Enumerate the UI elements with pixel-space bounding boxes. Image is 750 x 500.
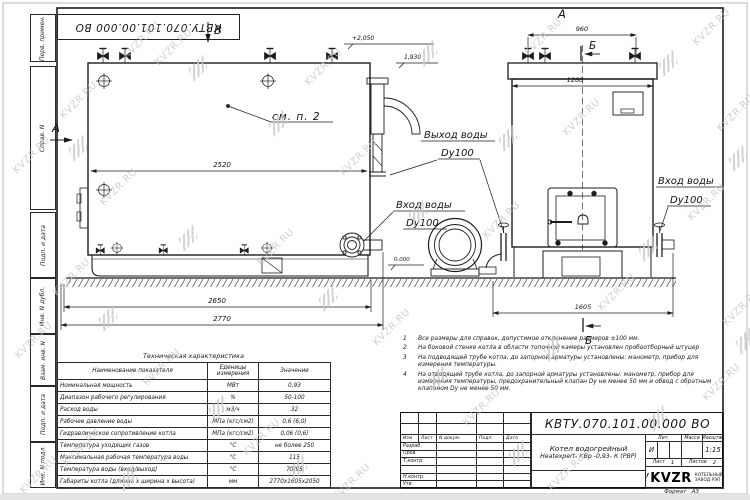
sig-sign-cell [477,451,504,459]
tech-table: Наименование показателя Еденицы измерени… [57,362,331,488]
tech-param-value: 50-100 [259,392,331,404]
lit-empty-2 [670,442,682,459]
tech-param-value: 0,6 (6,0) [259,416,331,428]
inlet-label: Вход воды [396,200,452,211]
tech-param-value: 70/95 [259,464,331,476]
outlet-label: Выход воды [424,130,488,141]
tech-param-value: 32 [259,404,331,416]
tech-param-value: 0,06 (0,6) [259,428,331,440]
tech-param-units: МПа (кгс/см2) [208,416,259,428]
tech-param-units: °С [208,440,259,452]
spare-cell [477,413,504,424]
sig-date-cell [504,466,531,474]
air-valve-icon [98,49,109,64]
sig-role-cell: Разраб. [401,443,437,451]
sig-date-cell [504,474,531,482]
tech-param-name: Гидравлическое сопротивление котла [58,428,208,440]
stamp-field-label: Перв. примен. [40,15,47,60]
air-valve-icon [265,49,276,64]
stamp-field: Подп. и дата [30,386,56,442]
boiler-skid [92,255,368,276]
dim-1605-label: 1605 [575,303,592,311]
sig-header-cell: Дата [504,435,531,443]
sig-sign-cell [477,481,504,489]
sig-date-cell [504,451,531,459]
sig-role-cell: Утв. [401,481,437,489]
tech-param-name: Диапазон рабочего регулирования [58,392,208,404]
spare-cell [401,413,419,424]
lifting-lug-icon [96,73,112,89]
empty-cell [531,471,646,489]
drain-valve-icon [159,245,167,256]
sheets-value: 2 [713,460,717,466]
tech-table-row: Температура воды (вход/выход)°С70/95 [58,464,331,476]
inlet-pipe-right [655,223,675,257]
level-zero-label: 0.000 [394,257,410,263]
tech-param-name: Температура уходящих газов [58,440,208,452]
tech-table-row: Габариты котла (длинна х ширина х высота… [58,476,331,488]
outlet-pipe [479,223,509,274]
spare-cell [437,424,477,435]
dim-2650-label: 2650 [208,297,226,305]
kvzr-logo-text: KVZR [650,471,692,486]
note-text: На отводящей трубе котла, до запорной ар… [418,372,721,394]
note-item: 3На подводящей трубе котла, до запорной … [403,355,721,370]
tech-table-block: Техническая характеристика Наименование … [57,352,330,488]
inlet-flange [340,233,382,257]
inlet-right-dn-label: Dy100 [670,195,703,206]
lifting-lug-icon [261,242,274,255]
stamp-field-label: Подп. и дата [40,225,47,266]
tech-param-value: 2770х1605х2050 [259,476,331,488]
note-item: 4На отводящей трубе котла, до запорной а… [403,372,721,394]
tech-param-units: °С [208,464,259,476]
product-name-line2: Heatexpert- КВр -0,93- К (РВР) [540,453,637,461]
lifting-lug-icon [111,242,124,255]
sig-doc-cell [437,474,477,482]
scale-header: Масштаб [703,435,724,442]
tech-table-row: Рабочее давление водыМПа (кгс/см2)0,6 (6… [58,416,331,428]
spare-cell [437,413,477,424]
sig-role-cell: Пров. [401,451,437,459]
sig-header-cell: Изм [401,435,419,443]
tech-param-name: Расход воды [58,404,208,416]
tech-table-row: Гидравлическое сопротивление котлаМПа (к… [58,428,331,440]
spare-cell [504,424,531,435]
title-block-designation: КВТУ.070.101.00.000 ВО [531,413,724,435]
note-item: 2На боковой стенке котла в области топоч… [403,345,721,352]
screenshot-bottom-strip [0,494,750,500]
stamp-field-label: Взам. инв. N [40,341,47,380]
sig-header-cell: Подп. [477,435,504,443]
note-number: 3 [403,355,418,370]
callout-see-p2: см. п. 2 [272,111,321,123]
stamp-field: Подп. и дата [30,212,56,278]
tech-header-units: Еденицы измерения [208,363,259,380]
note-item: 1Все размеры для справок, допустимое отк… [403,336,721,343]
mass-value [682,442,703,459]
tech-table-row: Максимальная рабочая температура воды°С1… [58,452,331,464]
tech-param-name: Рабочее давление воды [58,416,208,428]
level-1930-label: 1,930 [404,54,421,61]
designation-rotated-box: КВТУ.070.101.00.000 ВО [57,14,240,40]
notes-block: 1Все размеры для справок, допустимое отк… [403,336,721,396]
kvzr-logo-icon [646,473,649,484]
drain-valve-icon [240,245,248,256]
stamp-field-label: Инв. N дубл. [40,286,47,325]
tech-param-name: Максимальная рабочая температура воды [58,452,208,464]
sig-role-cell: Т.контр. [401,458,437,466]
sig-date-cell [504,443,531,451]
lit-empty-1 [658,442,670,459]
tech-param-name: Габариты котла (длинна х ширина х высота… [58,476,208,488]
sig-sign-cell [477,443,504,451]
support-base [543,251,622,278]
sheets-label: Листов [689,460,707,465]
lifting-lug-icon [260,73,276,89]
mass-header: Масса [682,435,703,442]
tech-header-value: Значение [259,363,331,380]
tech-table-title: Техническая характеристика [57,352,330,360]
title-block: КВТУ.070.101.00.000 ВО ИзмЛистN докум.По… [400,412,723,488]
lit-value: И [646,442,658,459]
sig-doc-cell [437,458,477,466]
stamp-field-label: Справ. N [40,124,47,151]
note-text: На подводящей трубе котла, до запорной а… [418,355,721,370]
dim-2520-label: 2520 [213,161,231,169]
tech-table-header-row: Наименование показателя Еденицы измерени… [58,363,331,380]
sig-header-cell: Лист [419,435,437,443]
outlet-dn-label: Dy100 [441,148,474,159]
tech-param-name: Номинальная мощность [58,380,208,392]
tech-param-value: 0,93 [259,380,331,392]
sig-header-cell: N докум. [437,435,477,443]
sheet-value: 1 [671,460,675,466]
sheets-cell: Листов 2 [682,459,724,467]
company-name-line2: ЗАВОД РЭП [695,478,723,483]
tech-header-name: Наименование показателя [58,363,208,380]
stamp-field: Взам. инв. N [30,334,56,386]
stamp-field-label: Инв. N подл. [40,445,47,485]
air-valve-icon [540,49,551,64]
sig-doc-cell [437,466,477,474]
smoke-duct [367,78,420,176]
air-valve-icon [630,49,641,64]
tech-table-row: Диапазон рабочего регулирования%50-100 [58,392,331,404]
tech-table-row: Расход водым3/ч32 [58,404,331,416]
tech-table-row: Номинальная мощностьМВт0,93 [58,380,331,392]
note-text: На боковой стенке котла в области топочн… [418,345,721,352]
tech-param-name: Температура воды (вход/выход) [58,464,208,476]
sig-sign-cell [477,466,504,474]
sheet-cell: Лист 1 [646,459,682,467]
sig-sign-cell [477,474,504,482]
sig-date-cell [504,458,531,466]
tech-param-units: МПа (кгс/см2) [208,428,259,440]
note-number: 4 [403,372,418,394]
dim-2770-label: 2770 [213,315,231,323]
spare-cell [401,424,419,435]
sheet-label: Лист [653,460,665,465]
spare-cell [419,424,437,435]
ground-hatch [66,278,676,287]
tech-param-value: не более 250 [259,440,331,452]
sig-role-cell [401,466,437,474]
product-name-cell: Котел водогрейный Heatexpert- КВр -0,93-… [531,435,646,471]
sig-doc-cell [437,443,477,451]
level-2050-label: +2,050 [352,35,374,42]
tech-param-units: % [208,392,259,404]
air-valve-icon [327,49,338,64]
air-valve-icon [120,49,131,64]
boiler-body [88,63,370,255]
note-number: 2 [403,345,418,352]
tech-param-units: м3/ч [208,404,259,416]
drawing-sheet: 2520 2650 2770 +2,050 1,930 0.000 см. п.… [0,0,750,500]
inlet-dn-label: Dy100 [406,218,439,229]
note-number: 1 [403,336,418,343]
dim-960-label: 960 [576,25,588,33]
stamp-field-label: Подп. и дата [40,394,47,435]
section-b-top-label: Б [589,40,596,52]
spare-cell [504,413,531,424]
lit-header: Лит. [646,435,682,442]
spare-cell [419,413,437,424]
nameplate [613,92,643,115]
sig-role-cell: Н.контр. [401,474,437,482]
product-name-line1: Котел водогрейный [550,444,628,453]
company-logo-cell: KVZR КОТЕЛЬНЫЙ ЗАВОД РЭП [646,467,724,489]
stamp-field: Перв. примен. [30,14,56,62]
stamp-field: Справ. N [30,66,56,210]
stamp-field: Инв. N дубл. [30,278,56,334]
front-view-a-label: А [557,7,566,21]
drain-valve-icon [96,245,104,256]
dim-1260-label: 1260 [567,76,584,84]
tech-param-units: мм [208,476,259,488]
designation-rotated-text: КВТУ.070.101.00.000 ВО [75,21,221,33]
stamp-field: Инв. N подл. [30,442,56,488]
note-text: Все размеры для справок, допустимое откл… [418,336,721,343]
tech-table-row: Температура уходящих газов°Сне более 250 [58,440,331,452]
lifting-lug-icon [96,182,112,198]
sig-sign-cell [477,458,504,466]
sig-date-cell [504,481,531,489]
inlet-right-label: Вход воды [658,176,714,187]
drawing-texts: 2520 2650 2770 +2,050 1,930 0.000 см. п.… [51,7,714,347]
tech-param-units: МВт [208,380,259,392]
door-latch [578,215,588,224]
spare-cell [477,424,504,435]
tech-param-units: °С [208,452,259,464]
sig-doc-cell [437,481,477,489]
tech-param-value: 115 [259,452,331,464]
scale-value: 1:15 [703,442,724,459]
sig-doc-cell [437,451,477,459]
